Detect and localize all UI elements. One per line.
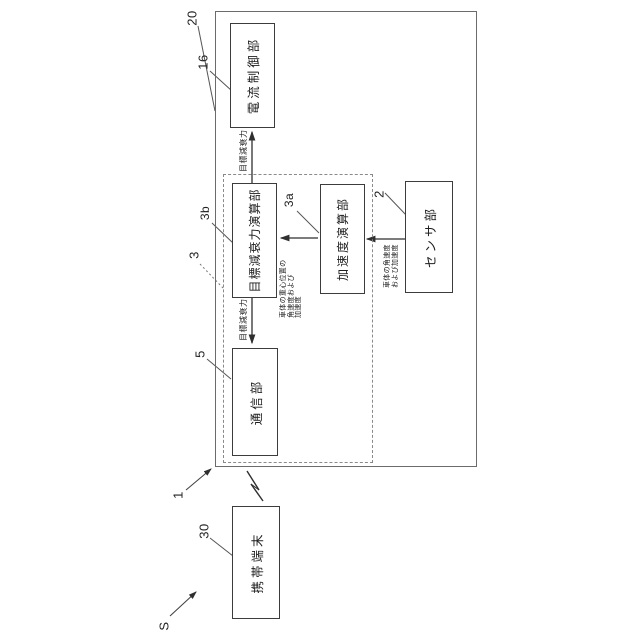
box-sensor: センサ部 [405, 181, 453, 293]
box-current-control-label: 電流制御部 [243, 37, 262, 115]
signal-cog-motion: 車体の重心位置の 角速度および 加速度 [280, 260, 303, 318]
ref-label-2: 2 [372, 190, 387, 198]
signal-target-damping-left: 目標減衰力 [238, 299, 249, 342]
wireless-zigzag-icon [247, 471, 263, 501]
figure-rotated-canvas: 電流制御部 目標減衰力演算部 加速度演算部 通信部 センサ部 携帯端末 S 1 … [0, 0, 640, 640]
signal-cog-motion-line1: 車体の重心位置の [280, 260, 288, 318]
box-communication: 通信部 [232, 348, 278, 456]
signal-cog-motion-line3: 加速度 [295, 260, 303, 318]
box-sensor-label: センサ部 [420, 206, 439, 268]
box-acceleration-calc-label: 加速度演算部 [334, 197, 351, 281]
ref-label-1: 1 [171, 491, 186, 499]
box-communication-label: 通信部 [246, 379, 265, 426]
signal-body-motion-line2: および加速度 [392, 244, 400, 288]
ref-label-s: S [157, 621, 172, 630]
arrow-ref-1 [186, 469, 211, 490]
signal-target-damping-right: 目標減衰力 [238, 130, 249, 173]
leader-ref-30 [210, 538, 233, 556]
box-mobile-terminal-label: 携帯端末 [247, 532, 266, 594]
signal-body-motion: 車体の角速度 および加速度 [384, 244, 399, 288]
ref-label-3a: 3a [282, 193, 296, 207]
patent-figure: 電流制御部 目標減衰力演算部 加速度演算部 通信部 センサ部 携帯端末 S 1 … [0, 0, 640, 640]
ref-label-20: 20 [185, 10, 200, 25]
box-target-damping-calc-label: 目標減衰力演算部 [246, 189, 263, 293]
ref-label-5: 5 [193, 350, 208, 358]
box-target-damping-calc: 目標減衰力演算部 [232, 183, 277, 298]
ref-label-30: 30 [197, 523, 212, 538]
ref-label-3: 3 [187, 251, 202, 259]
box-current-control: 電流制御部 [230, 23, 275, 128]
box-mobile-terminal: 携帯端末 [232, 506, 280, 619]
ref-label-16: 16 [196, 54, 211, 69]
ref-label-3b: 3b [198, 206, 212, 220]
arrow-ref-s [170, 592, 196, 616]
box-acceleration-calc: 加速度演算部 [320, 184, 365, 294]
signal-body-motion-line1: 車体の角速度 [384, 244, 392, 288]
